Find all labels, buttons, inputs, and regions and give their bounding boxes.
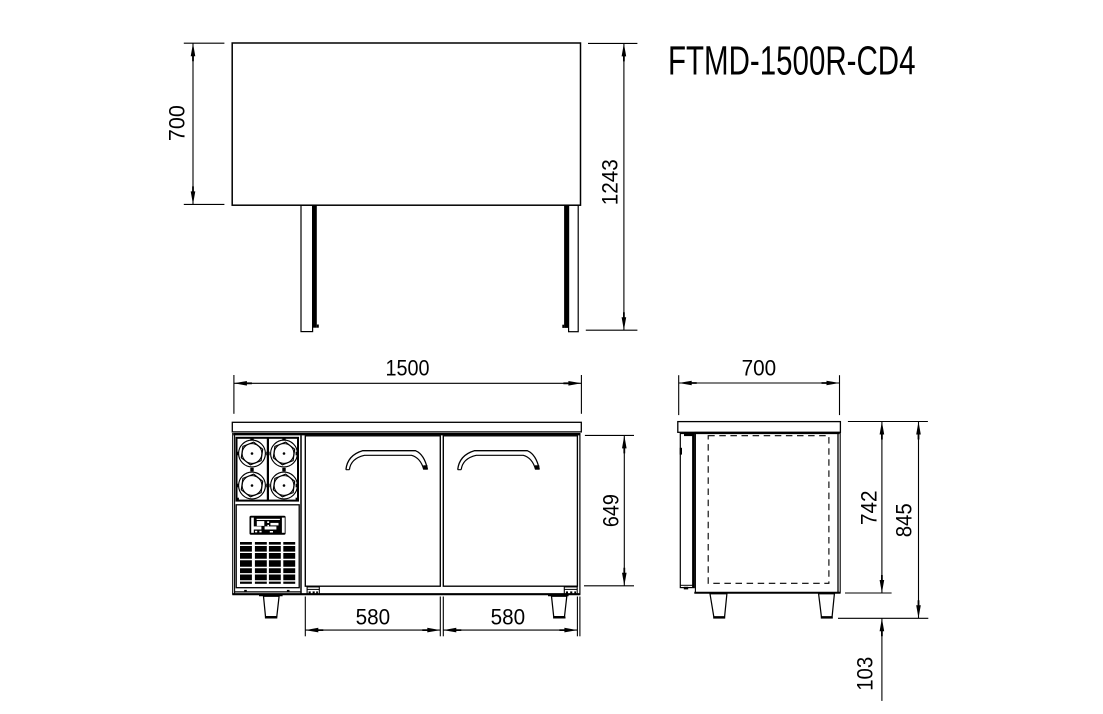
svg-text:1500: 1500 — [386, 356, 430, 381]
svg-text:580: 580 — [356, 604, 391, 629]
svg-text:700: 700 — [742, 356, 777, 381]
svg-text:580: 580 — [491, 604, 526, 629]
svg-text:1243: 1243 — [598, 159, 623, 205]
svg-text:700: 700 — [164, 105, 189, 141]
svg-text:845: 845 — [892, 503, 917, 537]
svg-text:742: 742 — [856, 491, 881, 526]
svg-text:649: 649 — [598, 494, 623, 527]
svg-text:103: 103 — [852, 657, 877, 691]
svg-text:FTMD-1500R-CD4: FTMD-1500R-CD4 — [668, 38, 916, 84]
